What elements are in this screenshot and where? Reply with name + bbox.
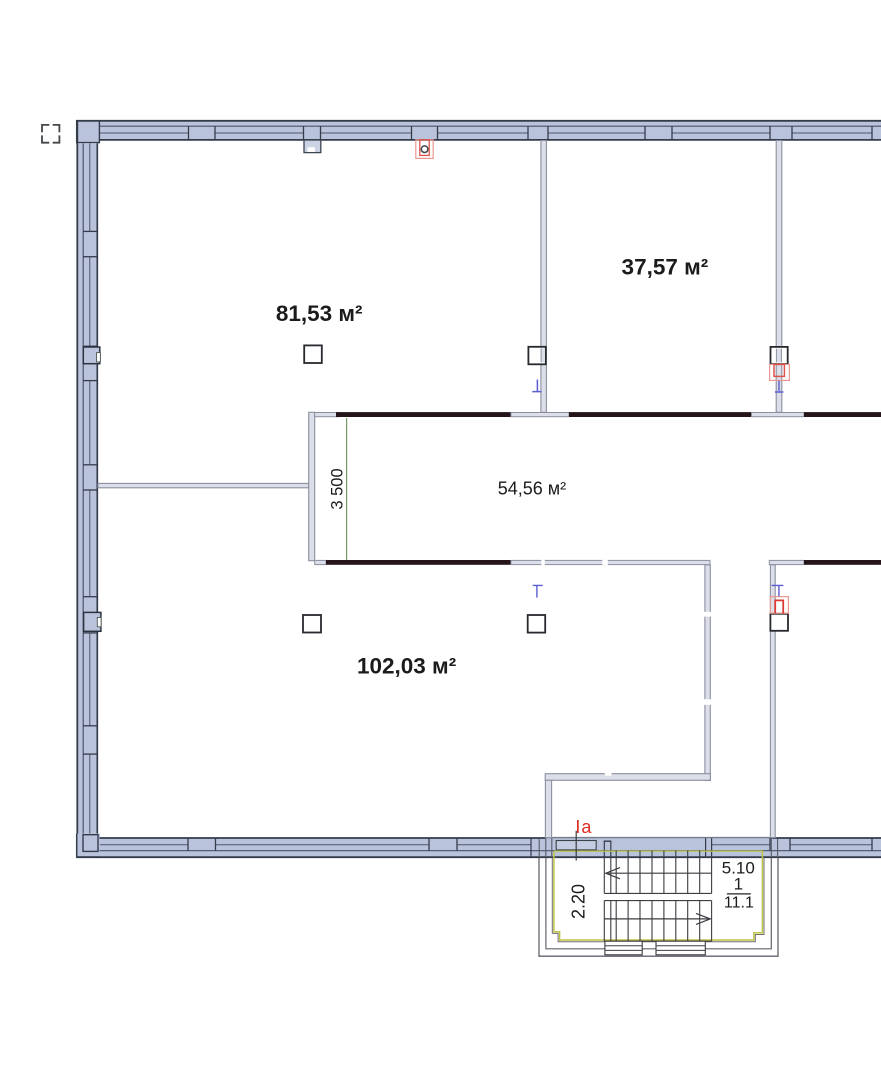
svg-text:37,57 м²: 37,57 м² (622, 254, 709, 279)
svg-text:102,03 м²: 102,03 м² (357, 653, 457, 678)
svg-text:54,56 м²: 54,56 м² (498, 479, 566, 499)
svg-text:2.20: 2.20 (569, 884, 589, 919)
svg-text:11.1: 11.1 (724, 895, 754, 912)
svg-text:3 500: 3 500 (329, 468, 347, 509)
svg-text:Ia: Ia (575, 817, 592, 837)
svg-text:1: 1 (734, 875, 743, 894)
svg-text:81,53 м²: 81,53 м² (276, 301, 363, 326)
